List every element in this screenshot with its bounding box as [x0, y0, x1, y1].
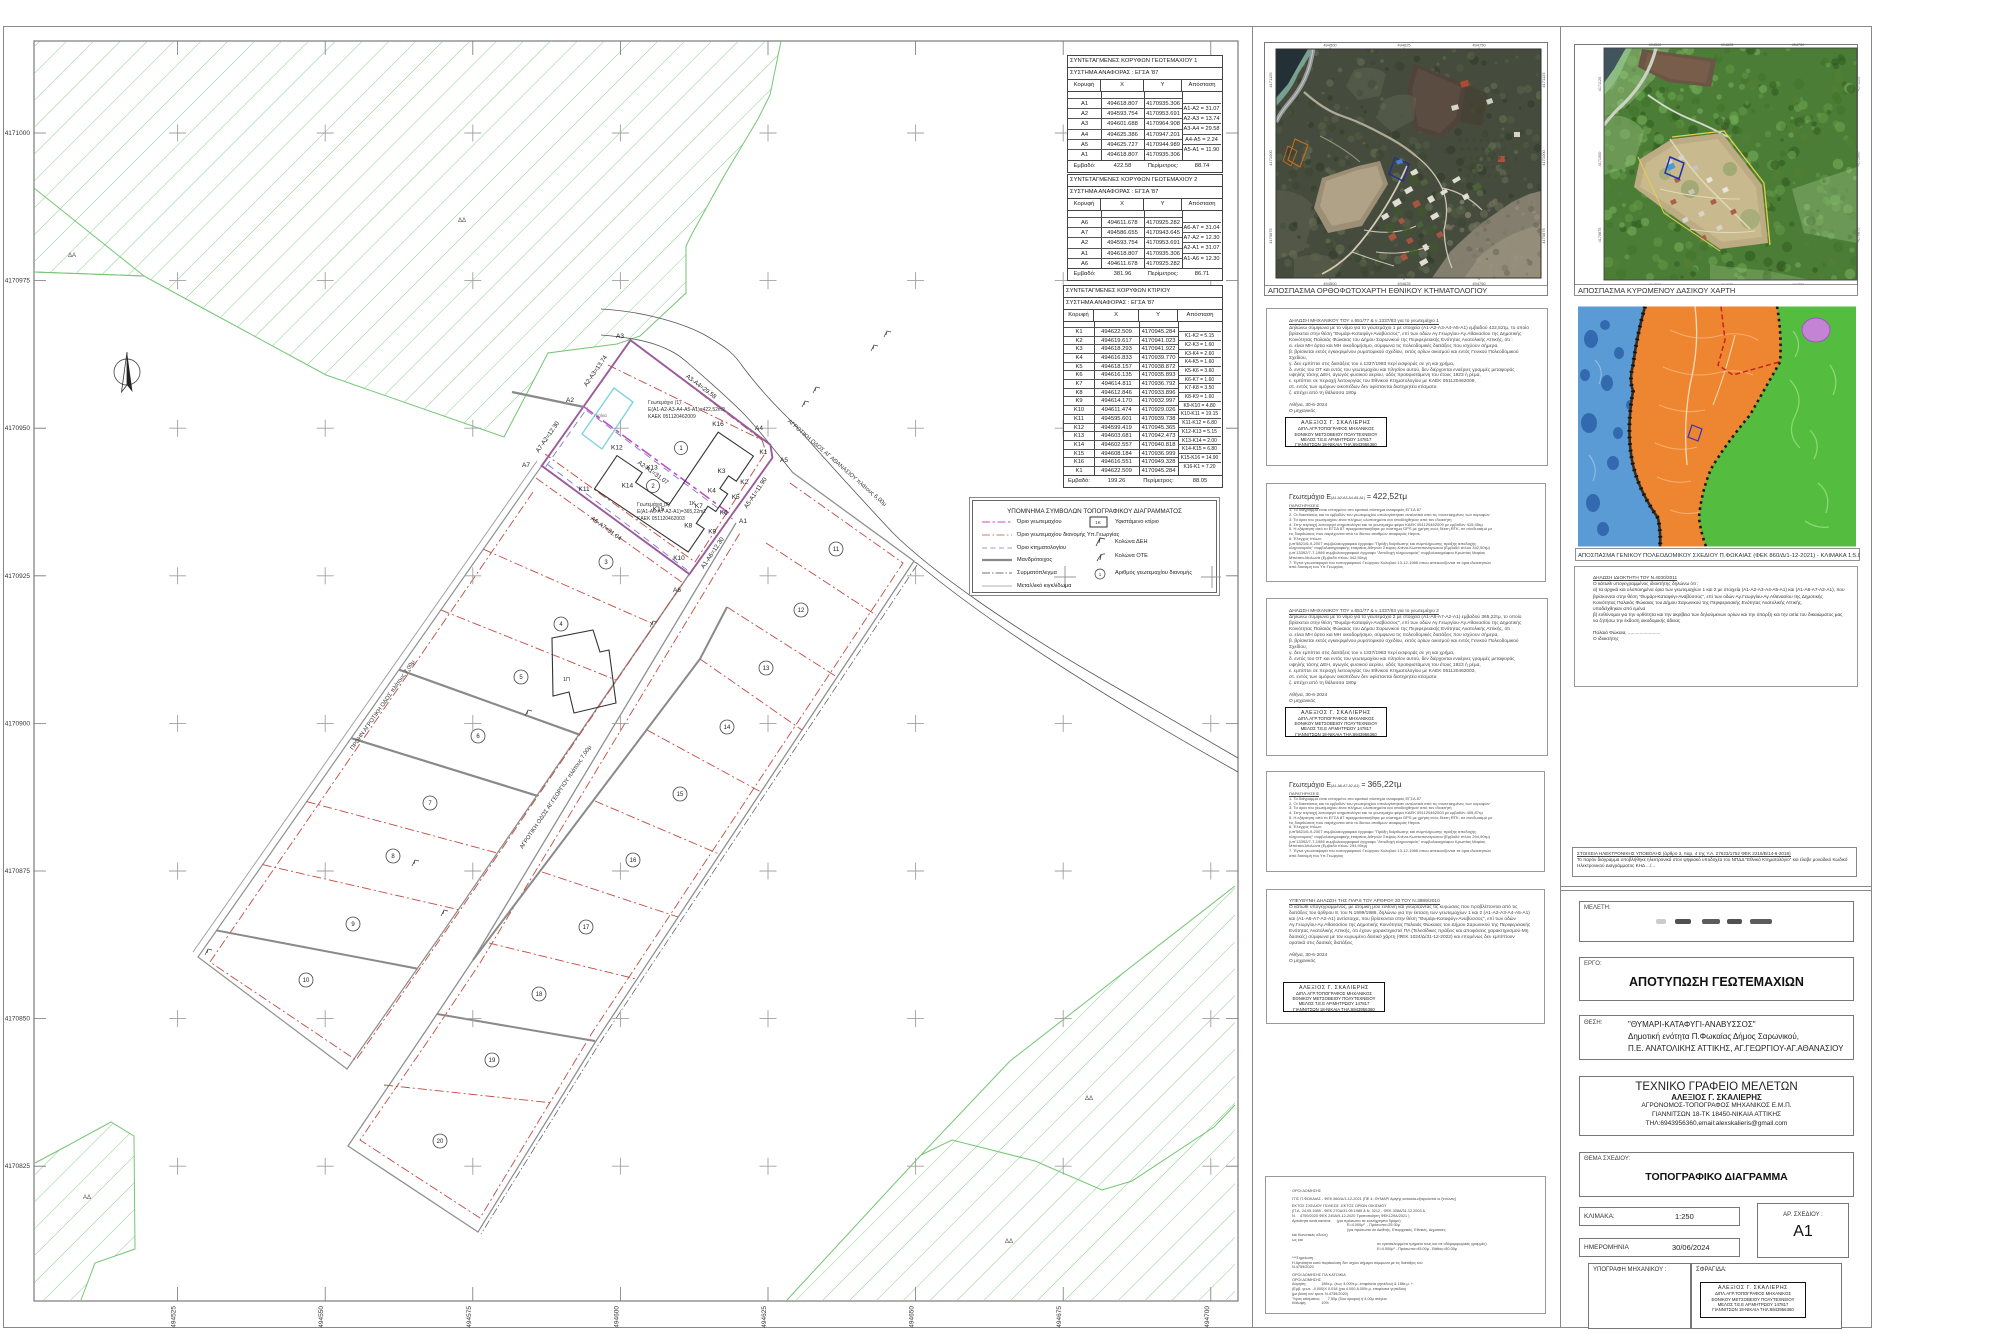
svg-text:K5: K5: [732, 494, 740, 501]
svg-text:K6: K6: [720, 510, 728, 517]
svg-text:494575: 494575: [466, 1306, 473, 1328]
svg-text:494500: 494500: [1323, 43, 1337, 48]
svg-text:4170950: 4170950: [5, 425, 31, 432]
svg-text:K14: K14: [622, 482, 634, 489]
svg-text:4171000: 4171000: [1857, 152, 1861, 167]
svg-text:4171125: 4171125: [1857, 77, 1861, 92]
svg-text:4170975: 4170975: [5, 278, 31, 285]
svg-text:ΑΠΟΣΠΑΣΜΑ ΓΕΝΙΚΟΥ ΠΟΛΕΟΔΟΜΙΚΟΥ: ΑΠΟΣΠΑΣΜΑ ΓΕΝΙΚΟΥ ΠΟΛΕΟΔΟΜΙΚΟΥ ΣΧΕΔΙΟΥ Π…: [1578, 553, 1860, 559]
svg-text:K12: K12: [611, 445, 623, 452]
svg-text:494625: 494625: [1397, 43, 1411, 48]
svg-text:K10: K10: [673, 555, 685, 562]
svg-text:14: 14: [724, 725, 731, 731]
svg-text:K11: K11: [579, 486, 590, 493]
svg-text:A2: A2: [566, 397, 574, 404]
svg-text:A5: A5: [780, 457, 788, 464]
svg-text:18: 18: [536, 992, 543, 998]
svg-text:ΑΠΟΣΠΑΣΜΑ ΟΡΘΟΦΩΤΟΧΑΡΤΗ ΕΘΝΙΚΟ: ΑΠΟΣΠΑΣΜΑ ΟΡΘΟΦΩΤΟΧΑΡΤΗ ΕΘΝΙΚΟΥ ΚΤΗΜΑΤΟΛ…: [1268, 286, 1487, 295]
svg-text:πισίνα: πισίνα: [594, 413, 607, 418]
svg-text:4170850: 4170850: [5, 1016, 31, 1023]
svg-text:4171125: 4171125: [1598, 77, 1602, 92]
svg-text:494700: 494700: [1204, 1306, 1211, 1328]
svg-text:1Κ: 1Κ: [1095, 520, 1101, 525]
svg-text:16: 16: [630, 858, 637, 864]
svg-text:20: 20: [437, 1139, 444, 1145]
svg-text:494625: 494625: [1721, 43, 1734, 47]
svg-text:4170825: 4170825: [5, 1163, 31, 1170]
svg-text:ΔΔ: ΔΔ: [1085, 1096, 1093, 1102]
svg-text:10: 10: [303, 978, 310, 984]
svg-text:4171125: 4171125: [1268, 72, 1273, 88]
svg-text:ΑΠΟΣΠΑΣΜΑ ΚΥΡΩΜΕΝΟΥ ΔΑΣΙΚΟΥ ΧΑ: ΑΠΟΣΠΑΣΜΑ ΚΥΡΩΜΕΝΟΥ ΔΑΣΙΚΟΥ ΧΑΡΤΗ: [1578, 286, 1735, 295]
svg-text:K4: K4: [708, 488, 716, 495]
svg-text:Ε(Α1-Α2-Α3-Α4-Α5-Α1)=422,52m2: Ε(Α1-Α2-Α3-Α4-Α5-Α1)=422,52m2: [648, 407, 725, 413]
svg-text:4171000: 4171000: [1598, 152, 1602, 167]
svg-text:A1: A1: [739, 518, 747, 525]
svg-text:K2: K2: [740, 479, 748, 486]
svg-text:494525: 494525: [171, 1306, 178, 1328]
svg-text:A3: A3: [616, 333, 624, 340]
svg-text:4170875: 4170875: [1268, 227, 1273, 243]
svg-text:13: 13: [763, 666, 770, 672]
svg-text:K9: K9: [708, 529, 716, 536]
svg-text:494625: 494625: [761, 1306, 768, 1328]
svg-text:Γεωτεμάχιο (1): Γεωτεμάχιο (1): [648, 399, 681, 406]
svg-text:11: 11: [833, 547, 840, 553]
svg-text:A7: A7: [522, 462, 530, 469]
svg-text:494750: 494750: [1792, 43, 1805, 47]
svg-text:4170900: 4170900: [5, 720, 31, 727]
svg-text:K16: K16: [712, 421, 724, 428]
svg-text:K1: K1: [759, 449, 767, 456]
svg-text:494750: 494750: [1472, 43, 1486, 48]
svg-text:17: 17: [583, 925, 590, 931]
svg-text:12: 12: [798, 608, 805, 614]
svg-text:4170875: 4170875: [1598, 228, 1602, 243]
svg-text:ΔΔ: ΔΔ: [458, 218, 466, 224]
svg-text:4170875: 4170875: [1541, 227, 1546, 243]
svg-text:4171125: 4171125: [1541, 72, 1546, 88]
svg-text:4171000: 4171000: [1541, 149, 1546, 165]
svg-text:Γεωτεμάχιο (2): Γεωτεμάχιο (2): [637, 501, 670, 508]
svg-text:4170875: 4170875: [1857, 228, 1861, 243]
svg-text:K8: K8: [684, 522, 692, 529]
svg-text:1Π: 1Π: [563, 677, 570, 683]
svg-text:ΚΑΕΚ 051120462009: ΚΑΕΚ 051120462009: [648, 414, 696, 420]
svg-text:ΚΑΕΚ 051120462003: ΚΑΕΚ 051120462003: [637, 516, 685, 522]
svg-text:494550: 494550: [318, 1306, 325, 1328]
svg-text:4170875: 4170875: [5, 868, 31, 875]
svg-text:1: 1: [1099, 572, 1102, 577]
svg-text:15: 15: [677, 792, 684, 798]
svg-text:494650: 494650: [909, 1306, 916, 1328]
svg-text:494500: 494500: [1649, 43, 1662, 47]
svg-text:4170925: 4170925: [5, 573, 31, 580]
svg-text:494600: 494600: [613, 1306, 620, 1328]
svg-text:19: 19: [489, 1058, 496, 1064]
svg-text:ΔΔ: ΔΔ: [1005, 1239, 1013, 1245]
svg-text:494675: 494675: [1056, 1306, 1063, 1328]
svg-text:ΑΔ: ΑΔ: [83, 1195, 91, 1201]
svg-text:4171000: 4171000: [1268, 149, 1273, 165]
svg-text:4171000: 4171000: [5, 130, 31, 137]
svg-text:ΔΑ: ΔΑ: [68, 253, 76, 259]
svg-text:A6: A6: [673, 587, 681, 594]
svg-text:K3: K3: [718, 468, 726, 475]
svg-text:Ε(Α1-Α6-Α7-Α2-Α1)=365,22m2: Ε(Α1-Α6-Α7-Α2-Α1)=365,22m2: [637, 509, 706, 515]
